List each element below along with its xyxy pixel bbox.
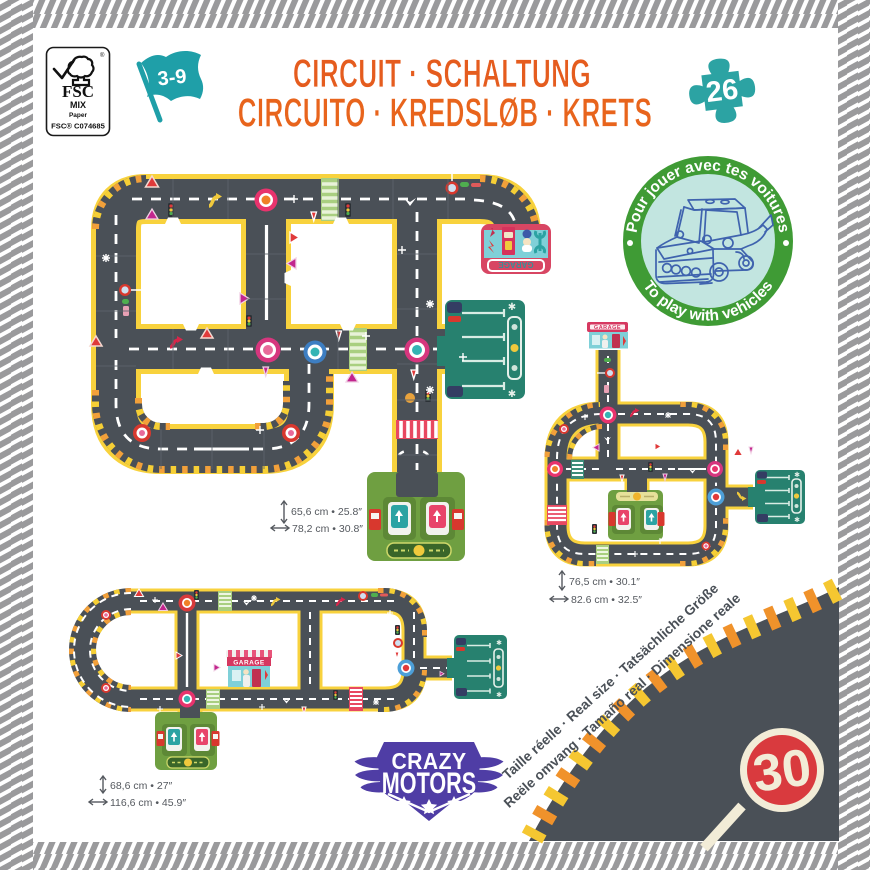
svg-text:MIX: MIX [70, 100, 86, 110]
svg-text:MOTORS: MOTORS [382, 765, 476, 799]
svg-text:116,6 cm • 45.9″: 116,6 cm • 45.9″ [110, 797, 186, 809]
svg-text:3-9: 3-9 [156, 66, 187, 91]
svg-text:GARAGE: GARAGE [594, 325, 621, 331]
svg-text:FSC: FSC [62, 82, 94, 101]
svg-text:GARAGE: GARAGE [498, 260, 534, 269]
svg-text:Paper: Paper [69, 112, 88, 119]
svg-text:GARAGE: GARAGE [233, 660, 265, 667]
svg-text:✱: ✱ [496, 639, 502, 647]
svg-text:76,5 cm • 30.1″: 76,5 cm • 30.1″ [569, 576, 640, 588]
svg-text:✱: ✱ [508, 389, 516, 400]
svg-text:CIRCUITO · KREDSLØB · KRETS: CIRCUITO · KREDSLØB · KRETS [238, 91, 652, 136]
svg-text:✱: ✱ [496, 691, 502, 699]
svg-text:✱: ✱ [508, 302, 516, 313]
svg-text:68,6 cm • 27″: 68,6 cm • 27″ [110, 780, 173, 792]
svg-text:FSC® C074685: FSC® C074685 [51, 122, 105, 131]
svg-text:®: ® [100, 52, 105, 59]
svg-text:30: 30 [749, 738, 814, 803]
svg-text:78,2 cm • 30.8″: 78,2 cm • 30.8″ [292, 523, 363, 535]
svg-text:✱: ✱ [794, 471, 800, 479]
svg-text:✱: ✱ [794, 516, 800, 524]
svg-text:82.6 cm • 32.5″: 82.6 cm • 32.5″ [571, 594, 642, 606]
svg-text:65,6 cm • 25.8″: 65,6 cm • 25.8″ [291, 506, 362, 518]
svg-text:26: 26 [704, 73, 740, 109]
